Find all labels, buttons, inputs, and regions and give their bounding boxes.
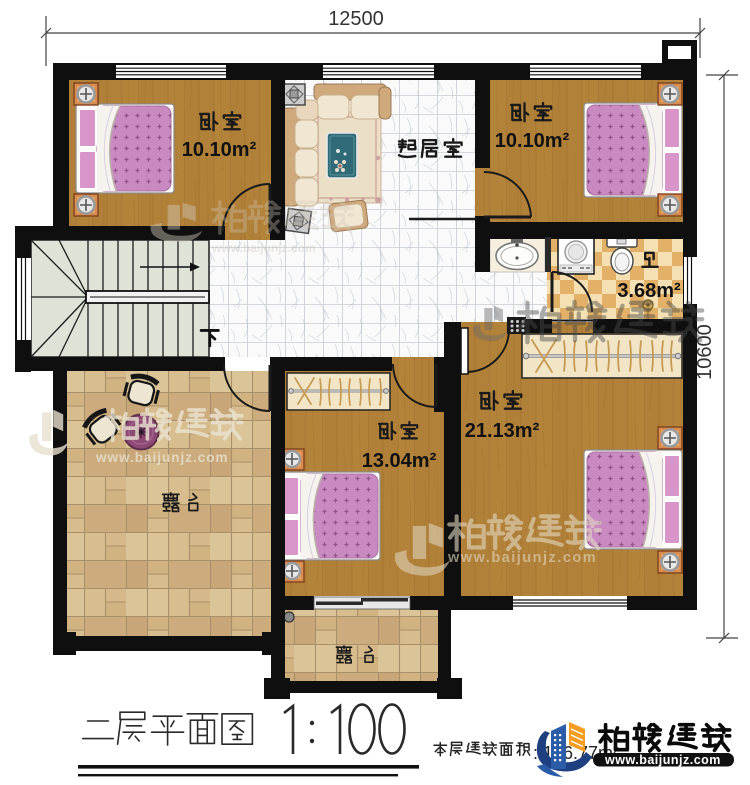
svg-text:www.baijunjz.com: www.baijunjz.com xyxy=(447,550,597,566)
svg-text:21.13m²: 21.13m² xyxy=(465,420,540,442)
svg-text:10.10m²: 10.10m² xyxy=(495,130,570,152)
svg-text:www.baijunjz.com: www.baijunjz.com xyxy=(604,753,721,767)
svg-text:3.68m²: 3.68m² xyxy=(617,280,681,302)
svg-text:13.04m²: 13.04m² xyxy=(362,450,437,472)
svg-text:10600: 10600 xyxy=(694,324,716,380)
svg-text:www.baijunjz.com: www.baijunjz.com xyxy=(95,450,229,465)
svg-text:www.baijunjz.com: www.baijunjz.com xyxy=(211,241,316,255)
svg-text:12500: 12500 xyxy=(328,8,384,30)
svg-text:10.10m²: 10.10m² xyxy=(182,139,257,161)
